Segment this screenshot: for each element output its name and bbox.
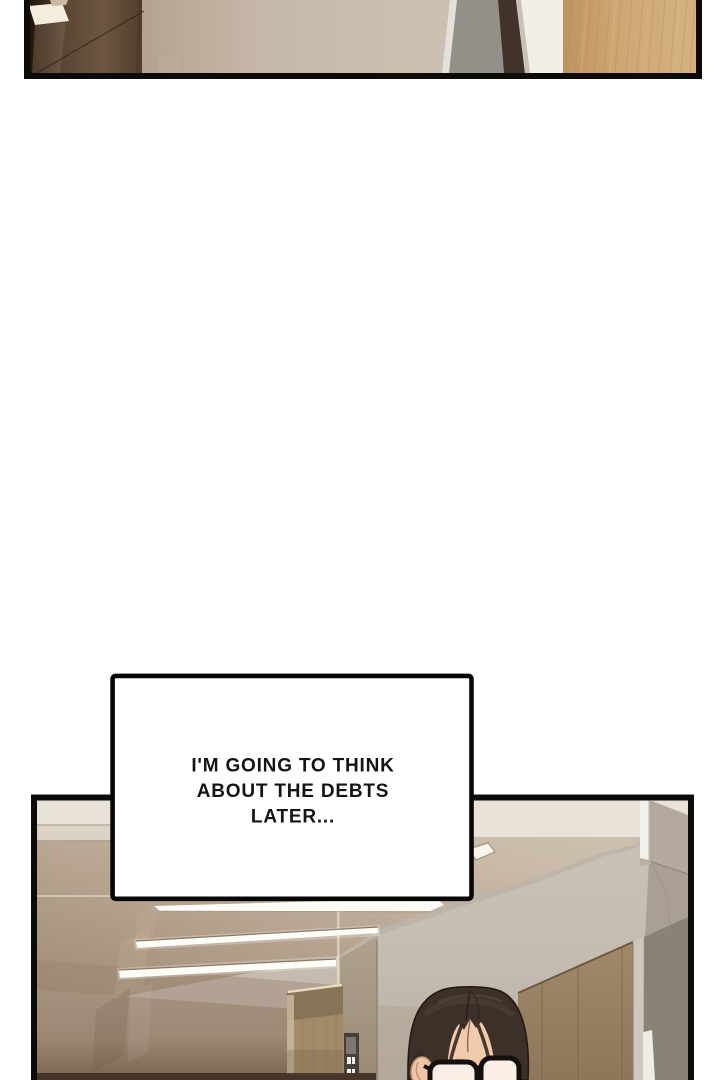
svg-text:ABOUT THE DEBTS: ABOUT THE DEBTS: [197, 781, 390, 802]
svg-text:LATER...: LATER...: [251, 807, 335, 828]
svg-text:I'M GOING TO THINK: I'M GOING TO THINK: [191, 756, 394, 777]
